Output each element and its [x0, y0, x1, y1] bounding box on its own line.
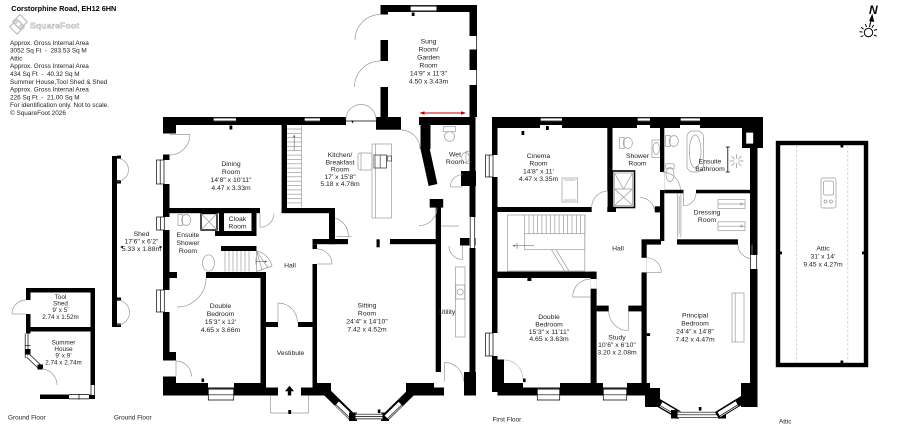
svg-text:Approx. Gross Internal Area: Approx. Gross Internal Area — [10, 87, 89, 94]
svg-text:Bedroom: Bedroom — [207, 311, 235, 318]
svg-text:Approx. Gross Internal Area: Approx. Gross Internal Area — [10, 40, 89, 47]
svg-text:15’3" x 11’11": 15’3" x 11’11" — [529, 329, 570, 336]
svg-text:Room: Room — [529, 161, 547, 168]
svg-text:5.18 x 4.78m: 5.18 x 4.78m — [320, 181, 360, 188]
svg-text:Sung: Sung — [421, 39, 437, 46]
svg-text:Room: Room — [698, 217, 716, 224]
svg-text:Room: Room — [331, 167, 349, 174]
svg-text:24’4" x 14’8": 24’4" x 14’8" — [676, 329, 714, 336]
svg-text:Corstorphine Road, EH12 6HN: Corstorphine Road, EH12 6HN — [11, 4, 116, 13]
svg-text:Shed: Shed — [134, 231, 150, 238]
svg-text:14’8" x 11’: 14’8" x 11’ — [523, 168, 554, 175]
svg-text:434 Sq Ft - 40.32 Sq M: 434 Sq Ft - 40.32 Sq M — [10, 71, 80, 78]
svg-text:Attic: Attic — [10, 55, 23, 62]
svg-text:Principal: Principal — [682, 313, 709, 320]
svg-text:10’6" x 6’10": 10’6" x 6’10" — [598, 342, 636, 349]
svg-text:4.50 x 3.43m: 4.50 x 3.43m — [409, 79, 449, 86]
svg-text:Kitchen/: Kitchen/ — [328, 152, 353, 159]
svg-text:Ensuite: Ensuite — [177, 232, 200, 239]
svg-text:14’8" x 10’11": 14’8" x 10’11" — [211, 177, 253, 184]
svg-text:14’9" x 11’3": 14’9" x 11’3" — [410, 71, 448, 78]
svg-text:Ground Floor: Ground Floor — [8, 415, 47, 422]
svg-text:Room: Room — [228, 223, 246, 230]
svg-text:Sitting: Sitting — [358, 303, 377, 310]
svg-text:Bathroom: Bathroom — [695, 166, 725, 173]
svg-text:Dressing: Dressing — [694, 210, 721, 217]
svg-text:Room: Room — [446, 159, 464, 166]
svg-text:Ground Floor: Ground Floor — [114, 415, 153, 422]
svg-text:Wet: Wet — [449, 152, 461, 159]
svg-text:Shower: Shower — [626, 153, 650, 160]
svg-text:4.47 x 3.35m: 4.47 x 3.35m — [519, 176, 559, 183]
svg-text:Shower: Shower — [176, 240, 200, 247]
svg-text:3.20 x 2.08m: 3.20 x 2.08m — [597, 350, 637, 357]
svg-text:15’3" x 12’: 15’3" x 12’ — [205, 319, 237, 326]
svg-text:Attic: Attic — [816, 246, 830, 253]
svg-text:Approx. Gross Internal Area: Approx. Gross Internal Area — [10, 63, 89, 70]
svg-text:Bedroom: Bedroom — [681, 321, 709, 328]
svg-text:Attic: Attic — [779, 419, 792, 426]
svg-text:Double: Double — [538, 314, 560, 321]
svg-text:Bedroom: Bedroom — [535, 321, 563, 328]
svg-text:4.47 x 3.33m: 4.47 x 3.33m — [211, 185, 251, 192]
svg-text:Room: Room — [222, 169, 240, 176]
svg-text:Breakfast: Breakfast — [326, 159, 355, 166]
svg-text:© SquareFoot 2026: © SquareFoot 2026 — [10, 109, 66, 117]
svg-text:For identification only. Not t: For identification only. Not to scale. — [10, 102, 109, 109]
svg-text:5.33 x 1.88m: 5.33 x 1.88m — [122, 246, 162, 253]
svg-text:2.74 x 1.52m: 2.74 x 1.52m — [42, 314, 78, 321]
svg-text:Summer House,Tool Shed & Shed: Summer House,Tool Shed & Shed — [10, 79, 108, 86]
svg-text:Garden: Garden — [417, 55, 440, 62]
svg-text:Vestibule: Vestibule — [277, 350, 305, 357]
svg-text:4.65 x 3.66m: 4.65 x 3.66m — [201, 327, 241, 334]
svg-text:Double: Double — [210, 303, 232, 310]
svg-text:9.45 x 4.27m: 9.45 x 4.27m — [803, 262, 843, 269]
svg-text:Ensuite: Ensuite — [699, 159, 722, 166]
svg-text:226 Sq Ft - 21.00 Sq M: 226 Sq Ft - 21.00 Sq M — [10, 94, 80, 101]
svg-text:Utility: Utility — [439, 309, 456, 316]
svg-text:Study: Study — [608, 335, 626, 342]
svg-text:Cinema: Cinema — [527, 153, 551, 160]
svg-text:First Floor: First Floor — [493, 417, 523, 424]
svg-text:2.74 x 2.74m: 2.74 x 2.74m — [45, 359, 81, 366]
svg-text:Room/: Room/ — [418, 47, 438, 54]
svg-text:Hall: Hall — [612, 246, 624, 253]
svg-text:Cloak: Cloak — [229, 216, 247, 223]
svg-text:Room: Room — [179, 248, 197, 255]
svg-text:N: N — [869, 3, 878, 17]
svg-text:24’4" x 14’10": 24’4" x 14’10" — [346, 319, 388, 326]
svg-text:Room: Room — [358, 311, 376, 318]
svg-text:7.42 x 4.47m: 7.42 x 4.47m — [675, 337, 715, 344]
svg-text:7.42 x 4.52m: 7.42 x 4.52m — [347, 327, 387, 334]
svg-text:17’6" x 6’2": 17’6" x 6’2" — [125, 239, 160, 246]
svg-text:Hall: Hall — [284, 263, 296, 270]
svg-text:4.65 x 3.63m: 4.65 x 3.63m — [529, 336, 569, 343]
svg-text:Room: Room — [628, 160, 646, 167]
svg-text:3052 Sq Ft - 283.53 Sq M: 3052 Sq Ft - 283.53 Sq M — [10, 48, 87, 55]
svg-text:31’ x 14’: 31’ x 14’ — [810, 254, 836, 261]
svg-text:Dining: Dining — [221, 161, 240, 168]
svg-text:17’ x 15’8": 17’ x 15’8" — [324, 174, 356, 181]
svg-text:SquareFoot: SquareFoot — [30, 21, 79, 31]
svg-text:Room: Room — [419, 63, 437, 70]
